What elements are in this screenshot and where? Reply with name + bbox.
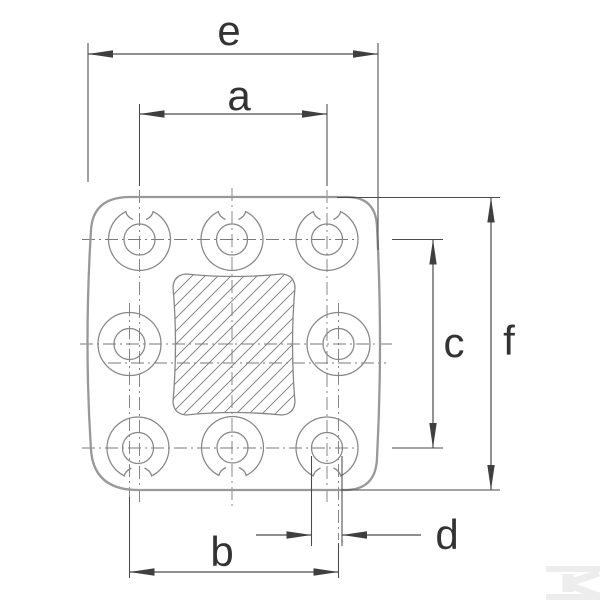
dim-label-d: d [435,511,458,558]
dim-label-c: c [444,319,465,366]
dim-label-e: e [217,7,240,54]
dimension-b: b [130,497,339,578]
hatched-center-block [173,274,295,415]
bolt-holes-top-row [108,212,358,271]
dim-label-b: b [210,528,233,575]
dim-label-f: f [503,317,515,364]
dimension-c: c [392,240,465,449]
dimension-a: a [140,72,328,186]
technical-drawing-canvas: e a b d c [0,0,600,600]
dimension-e: e [88,7,378,250]
kramp-logo-watermark [546,566,600,600]
bolt-holes-bottom-row [107,417,358,476]
dim-label-a: a [227,72,251,119]
dimension-d: d [256,456,459,558]
